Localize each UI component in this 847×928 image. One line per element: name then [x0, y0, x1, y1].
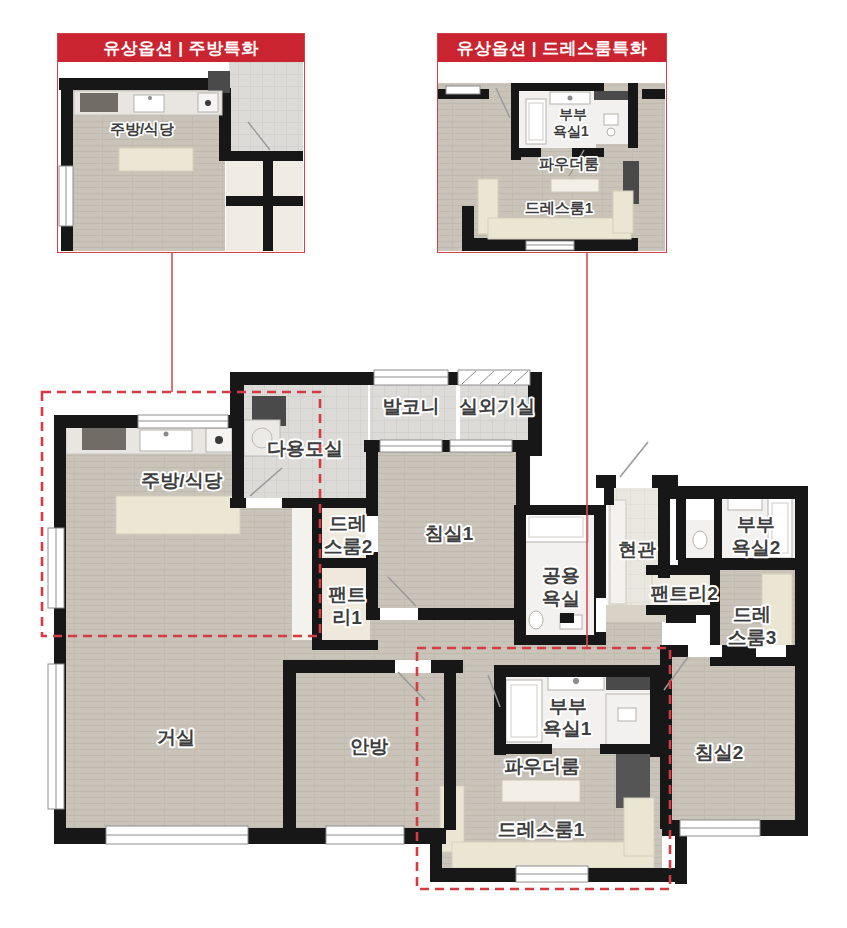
label-pantry1-line1: 팬트 — [328, 584, 366, 605]
callout-powder-room-label: 파우더룸 — [539, 155, 599, 172]
label-dressroom2-line2: 스룸2 — [324, 536, 373, 557]
label-common-bath-line1: 공용 — [542, 565, 580, 586]
label-pantry1-line2: 리1 — [332, 607, 362, 628]
callout-dressroom-body: 부부 욕실1 파우더룸 드레스룸1 — [438, 62, 666, 251]
label-balcony: 발코니 — [383, 396, 440, 417]
callout-kitchen-room-label: 주방/식당 — [110, 120, 174, 137]
label-master-bedroom: 안방 — [350, 736, 389, 757]
label-master-bath1-line2: 욕실1 — [543, 718, 592, 739]
callout-master-bath-line2: 욕실1 — [553, 123, 589, 139]
label-bedroom1: 침실1 — [425, 523, 474, 544]
label-powder-room: 파우더룸 — [504, 756, 580, 777]
label-utility-room: 다용도실 — [267, 438, 343, 459]
kitchen-island — [116, 496, 240, 534]
label-outdoor-unit-room: 실외기실 — [459, 396, 535, 417]
label-master-bath2-line1: 부부 — [737, 514, 775, 535]
label-master-bath1-line1: 부부 — [549, 696, 587, 717]
callout-kitchen: 유상옵션 | 주방특화 — [57, 33, 305, 253]
callout-dressroom1-label: 드레스룸1 — [525, 199, 593, 216]
callout-dressroom-title: 유상옵션 | 드레스룸특화 — [438, 34, 666, 62]
label-dressroom3-line2: 스룸3 — [728, 627, 777, 648]
label-dressroom3-line1: 드레 — [733, 604, 771, 625]
floor-plan-page: 다용도실 발코니 실외기실 주방/식당 드레 스룸2 침실1 팬트 리1 공용 … — [0, 0, 847, 928]
label-living-room: 거실 — [157, 727, 195, 748]
powder-counter — [502, 780, 580, 802]
callout-kitchen-plan: 주방/식당 — [58, 62, 303, 251]
callout-dressroom-plan: 부부 욕실1 파우더룸 드레스룸1 — [438, 62, 665, 251]
label-kitchen-dining: 주방/식당 — [141, 470, 222, 491]
label-dressroom1: 드레스룸1 — [498, 819, 585, 840]
callout-kitchen-body: 주방/식당 — [58, 62, 304, 251]
callout-kitchen-title: 유상옵션 | 주방특화 — [58, 34, 304, 62]
label-master-bath2-line2: 욕실2 — [732, 537, 781, 558]
callout-dressroom: 유상옵션 | 드레스룸특화 — [437, 33, 667, 253]
label-entrance: 현관 — [618, 539, 656, 560]
label-dressroom2-line1: 드레 — [329, 513, 367, 534]
callout-master-bath-line1: 부부 — [559, 106, 587, 122]
label-bedroom2: 침실2 — [695, 742, 744, 763]
label-pantry2: 팬트리2 — [650, 583, 718, 604]
label-common-bath-line2: 욕실 — [542, 588, 580, 609]
